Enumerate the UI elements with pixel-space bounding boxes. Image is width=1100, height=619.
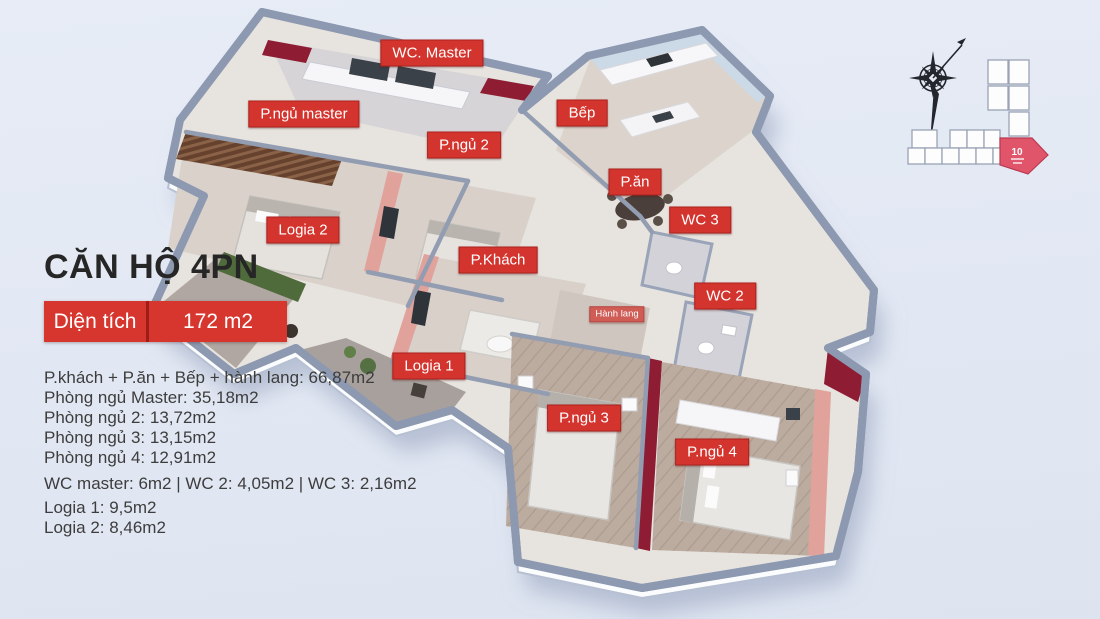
floorplan-stage: 10 WC. MasterP.ngủ masterBếpP.ngủ 2P.ănW… <box>0 0 1100 619</box>
area-line: Phòng ngủ 3: 13,15m2 <box>44 430 404 446</box>
area-line: Phòng ngủ 4: 12,91m2 <box>44 450 404 466</box>
area-line: Logia 1: 9,5m2 <box>44 500 404 516</box>
area-line: Phòng ngủ Master: 35,18m2 <box>44 390 404 406</box>
area-box: Diện tích 172 m2 <box>44 301 287 342</box>
room-label-pngu-4: P.ngủ 4 <box>675 439 749 466</box>
area-line: WC master: 6m2 | WC 2: 4,05m2 | WC 3: 2,… <box>44 476 404 492</box>
area-label: Diện tích <box>44 301 146 342</box>
area-breakdown-list: P.khách + P.ăn + Bếp + hành lang: 66,87m… <box>44 370 404 536</box>
room-label-wc-3: WC 3 <box>669 207 731 234</box>
room-label-pngu-2: P.ngủ 2 <box>427 132 501 159</box>
compass-icon <box>909 38 966 144</box>
area-line: P.khách + P.ăn + Bếp + hành lang: 66,87m… <box>44 370 404 386</box>
area-value: 172 m2 <box>149 301 287 342</box>
room-label-wc-master: WC. Master <box>380 40 483 67</box>
room-label-pkhach: P.Khách <box>459 247 538 274</box>
site-plan-unit-number: 10 <box>1011 147 1023 158</box>
page-title: CĂN HỘ 4PN <box>44 248 404 287</box>
room-label-bep: Bếp <box>557 100 608 127</box>
room-label-pngu-master: P.ngủ master <box>248 101 359 128</box>
area-line: Phòng ngủ 2: 13,72m2 <box>44 410 404 426</box>
room-label-pan: P.ăn <box>609 169 662 196</box>
info-panel: CĂN HỘ 4PN Diện tích 172 m2 P.khách + P.… <box>44 248 404 540</box>
site-plan-highlighted-unit <box>1000 138 1048 174</box>
area-line: Logia 2: 8,46m2 <box>44 520 404 536</box>
room-label-pngu-3: P.ngủ 3 <box>547 405 621 432</box>
room-label-wc-2: WC 2 <box>694 283 756 310</box>
room-label-hanh-lang: Hành lang <box>589 306 644 322</box>
room-label-logia-2: Logia 2 <box>266 217 339 244</box>
